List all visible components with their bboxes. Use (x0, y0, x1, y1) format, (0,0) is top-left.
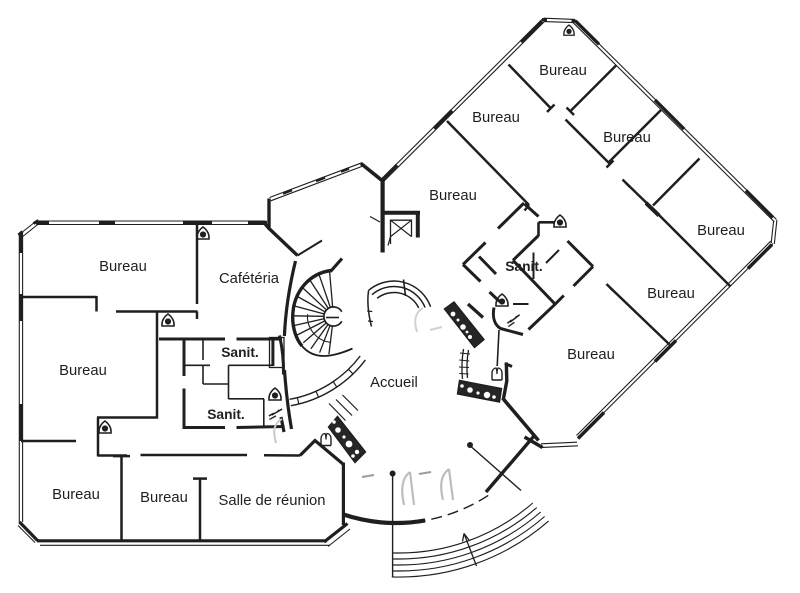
svg-text:Bureau: Bureau (140, 490, 188, 506)
svg-text:Bureau: Bureau (567, 347, 615, 363)
svg-text:Bureau: Bureau (603, 130, 651, 146)
svg-text:Bureau: Bureau (647, 286, 695, 302)
svg-text:Sanit.: Sanit. (207, 407, 245, 422)
svg-text:Bureau: Bureau (697, 223, 745, 239)
svg-text:Bureau: Bureau (99, 259, 147, 275)
svg-text:Sanit.: Sanit. (221, 345, 259, 360)
svg-text:Bureau: Bureau (52, 487, 100, 503)
svg-text:Bureau: Bureau (59, 363, 107, 379)
svg-text:Cafétéria: Cafétéria (219, 271, 280, 287)
svg-text:Bureau: Bureau (429, 188, 477, 204)
svg-text:Salle de réunion: Salle de réunion (219, 493, 326, 509)
svg-text:Bureau: Bureau (539, 63, 587, 79)
svg-text:Sanit.: Sanit. (505, 259, 543, 274)
svg-text:Accueil: Accueil (370, 375, 418, 391)
svg-text:Bureau: Bureau (472, 110, 520, 126)
